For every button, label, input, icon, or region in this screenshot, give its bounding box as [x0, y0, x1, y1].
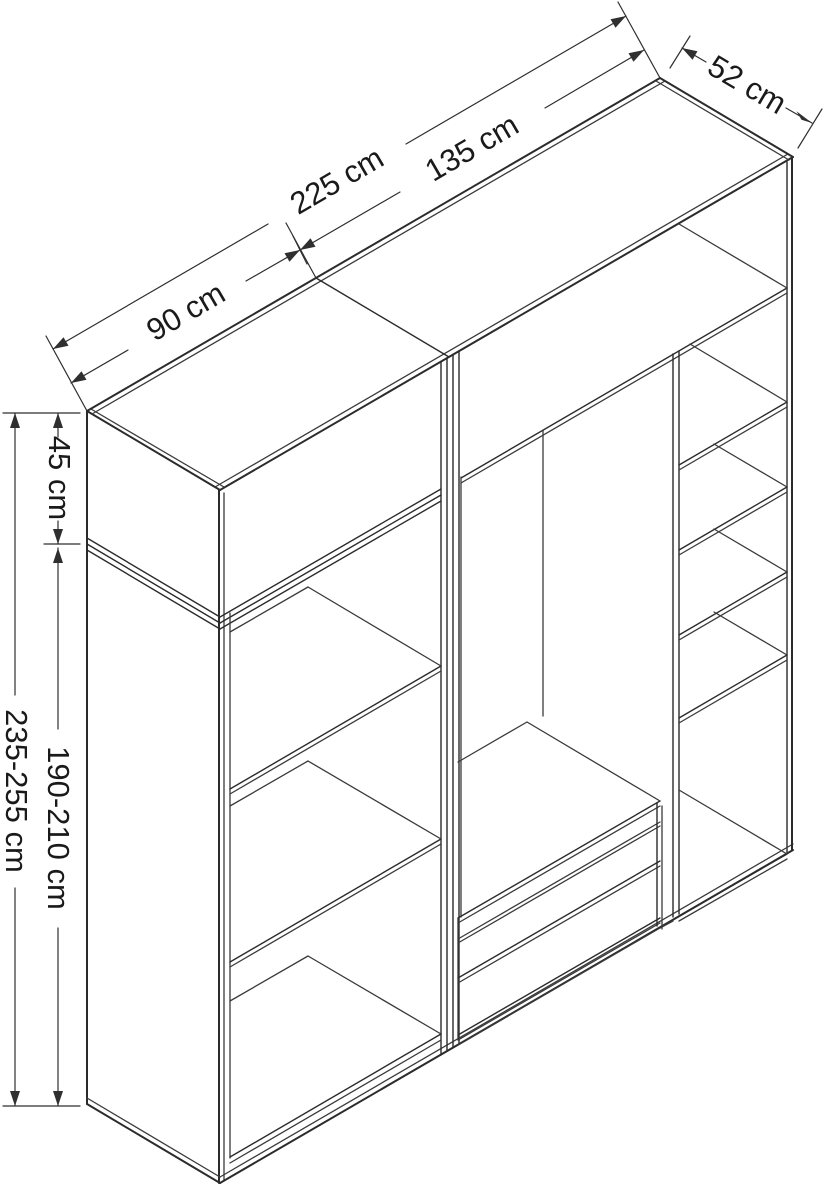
dimension-lines-top: [46, 2, 660, 411]
dimension-label-right-module-width: 135 cm: [419, 107, 524, 188]
wardrobe-top-face: [87, 78, 793, 490]
wardrobe-front-frame: [220, 157, 793, 1183]
wardrobe-dimension-drawing: 90 cm 135 cm 225 cm 52 cm 45 cm 235-255 …: [0, 0, 824, 1184]
module-divider-panels: [441, 351, 459, 1055]
dimension-label-total-width: 225 cm: [284, 140, 389, 221]
left-module-shelves: [230, 587, 441, 1163]
right-module-column-divider: [543, 351, 679, 917]
right-shelf-column: [679, 162, 787, 921]
dimension-label-total-height: 235-255 cm: [0, 709, 34, 873]
wardrobe-left-side-panel: [87, 411, 224, 1183]
dimension-label-left-module-width: 90 cm: [140, 275, 231, 348]
wardrobe-drawing-canvas: 90 cm 135 cm 225 cm 52 cm 45 cm 235-255 …: [0, 0, 824, 1184]
dimension-label-top-section-height: 45 cm: [42, 436, 77, 520]
left-module-top-box: [220, 489, 441, 629]
dimension-label-lower-section-height: 190-210 cm: [41, 746, 76, 910]
drawer-box: [458, 722, 673, 1045]
right-module-top-shelf: [461, 224, 787, 917]
